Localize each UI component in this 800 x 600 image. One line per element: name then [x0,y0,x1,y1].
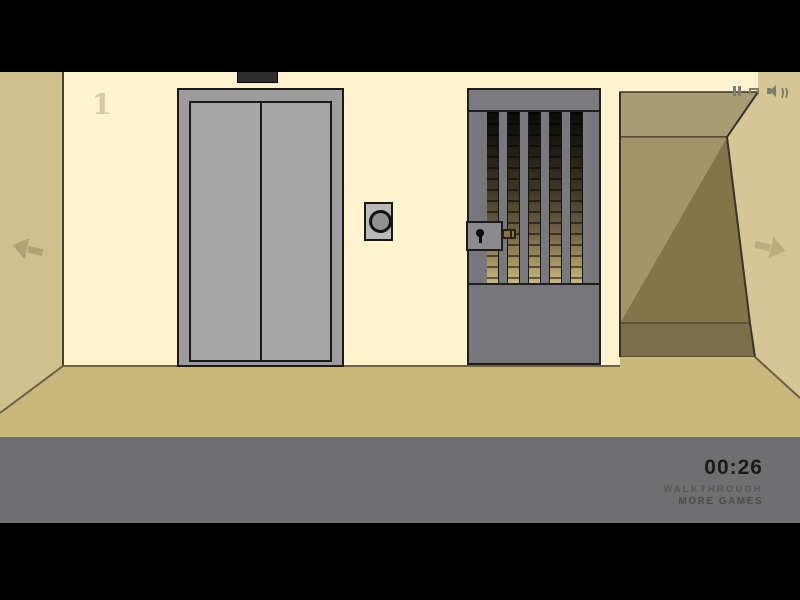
sound-icon[interactable] [767,85,785,97]
elevator-door-right[interactable] [261,103,331,360]
pause-icon[interactable] [733,86,741,96]
elevator-indicator [237,71,278,83]
letterbox-top [0,0,800,72]
quality-icon[interactable] [749,88,759,95]
corridor-floor[interactable] [620,323,755,357]
more-games-link[interactable]: MORE GAMES [664,496,764,507]
left-arrow-head [10,234,30,259]
hud-block: 00:26 WALKTHROUGH MORE GAMES [664,457,764,507]
call-button-plate [364,202,393,241]
stairwell-behind-bars [487,112,590,283]
elevator[interactable] [177,88,344,367]
timer: 00:26 [664,457,764,478]
gate-lock[interactable] [466,221,503,251]
walkthrough-link[interactable]: WALKTHROUGH [664,484,764,494]
call-button[interactable] [369,210,392,233]
left-arrow-tail [27,246,43,256]
flash-controls [733,84,785,98]
floor [0,357,800,437]
game-stage: 1 [0,0,800,600]
lock-bolt[interactable] [502,229,516,239]
elevator-door-left[interactable] [191,103,261,360]
sound-icon-cone [769,85,776,97]
elevator-doors[interactable] [189,101,332,362]
letterbox-bottom [0,523,800,600]
gate-bottom-panel [469,283,599,363]
gate-bars[interactable] [487,112,590,283]
hud-bar: 00:26 WALKTHROUGH MORE GAMES [0,437,800,523]
keyhole-stem [479,235,482,243]
floor-number: 1 [92,88,111,121]
sound-icon-wave [780,86,788,100]
right-arrow-tail [754,241,770,251]
gate-header [469,90,599,112]
